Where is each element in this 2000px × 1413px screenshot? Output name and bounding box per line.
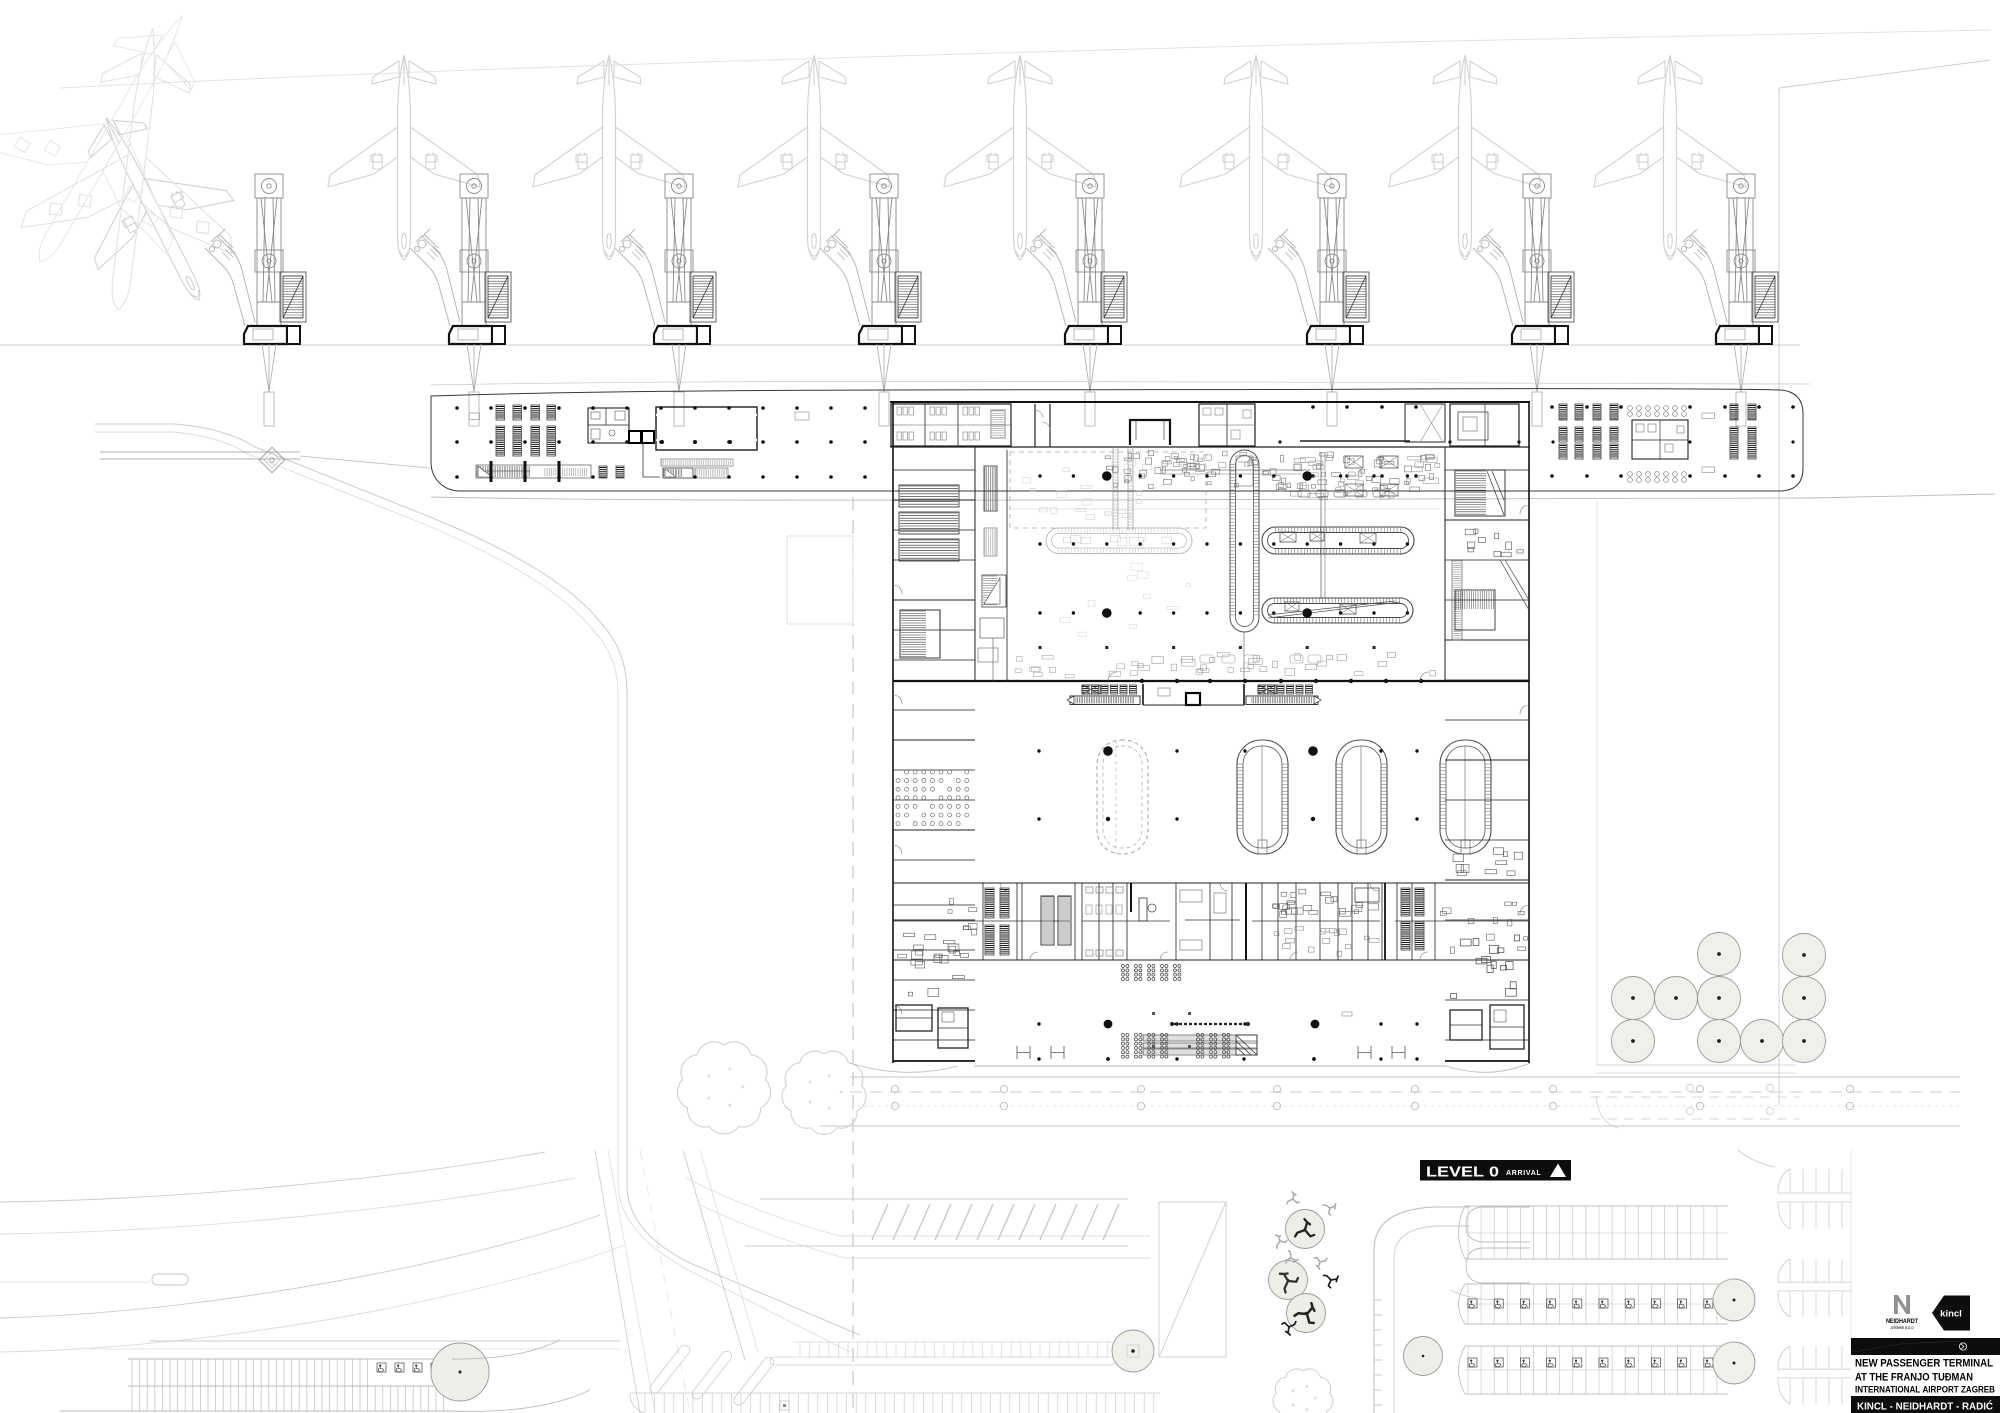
svg-text:ARRIVAL: ARRIVAL [1506,1170,1542,1177]
svg-text:INTERNATIONAL AIRPORT ZAGREB: INTERNATIONAL AIRPORT ZAGREB [1855,1385,1995,1396]
svg-text:AT THE FRANJO TUĐMAN: AT THE FRANJO TUĐMAN [1855,1372,1973,1384]
svg-text:arhitekti d.o.o: arhitekti d.o.o [1891,1325,1914,1330]
svg-text:LEVEL 0: LEVEL 0 [1426,1164,1499,1181]
svg-text:NEIDHARDT: NEIDHARDT [1886,1318,1919,1325]
svg-text:KINCL - NEIDHARDT - RADIĆ: KINCL - NEIDHARDT - RADIĆ [1857,1400,1993,1413]
svg-text:NEW PASSENGER TERMINAL: NEW PASSENGER TERMINAL [1855,1358,1993,1370]
svg-text:kincl: kincl [1940,1309,1962,1320]
